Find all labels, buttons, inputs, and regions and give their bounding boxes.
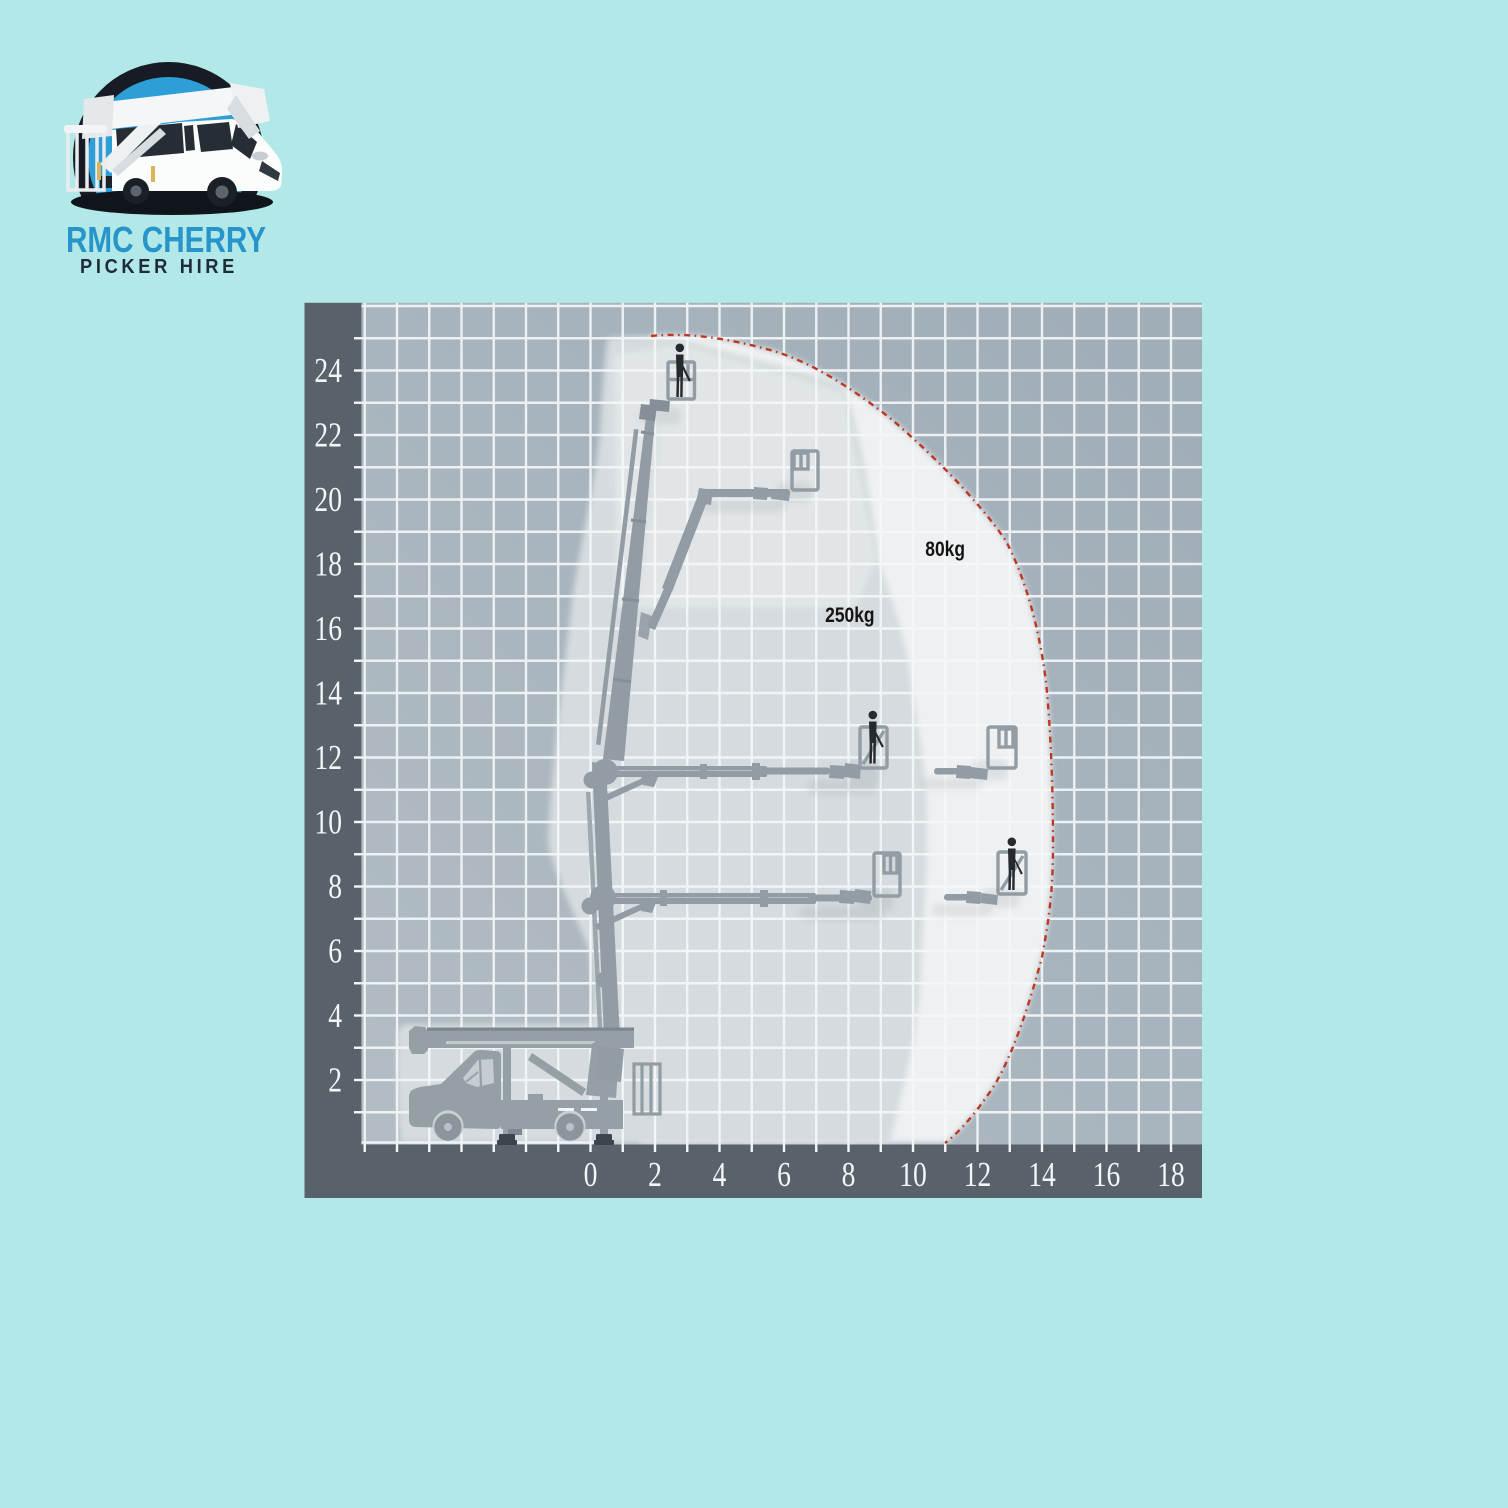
svg-text:PICKER HIRE: PICKER HIRE [80, 256, 238, 278]
svg-text:4: 4 [328, 996, 342, 1035]
svg-text:RMC CHERRY: RMC CHERRY [66, 219, 266, 260]
svg-text:22: 22 [314, 416, 342, 455]
svg-text:10: 10 [899, 1155, 927, 1194]
svg-text:250kg: 250kg [825, 605, 874, 628]
svg-text:18: 18 [1157, 1155, 1185, 1194]
svg-text:14: 14 [314, 674, 342, 713]
svg-text:16: 16 [314, 609, 342, 648]
svg-text:12: 12 [964, 1155, 992, 1194]
svg-text:14: 14 [1028, 1155, 1056, 1194]
svg-text:20: 20 [314, 480, 342, 519]
svg-text:0: 0 [584, 1155, 598, 1194]
svg-text:10: 10 [314, 803, 342, 842]
svg-text:2: 2 [328, 1061, 342, 1100]
svg-text:8: 8 [328, 867, 342, 906]
svg-text:12: 12 [314, 738, 342, 777]
svg-text:4: 4 [713, 1155, 727, 1194]
svg-text:6: 6 [777, 1155, 791, 1194]
svg-text:80kg: 80kg [925, 539, 965, 562]
svg-text:8: 8 [842, 1155, 856, 1194]
svg-text:18: 18 [314, 545, 342, 584]
svg-text:24: 24 [314, 351, 342, 390]
svg-text:6: 6 [328, 932, 342, 971]
svg-text:2: 2 [648, 1155, 662, 1194]
svg-text:16: 16 [1093, 1155, 1121, 1194]
